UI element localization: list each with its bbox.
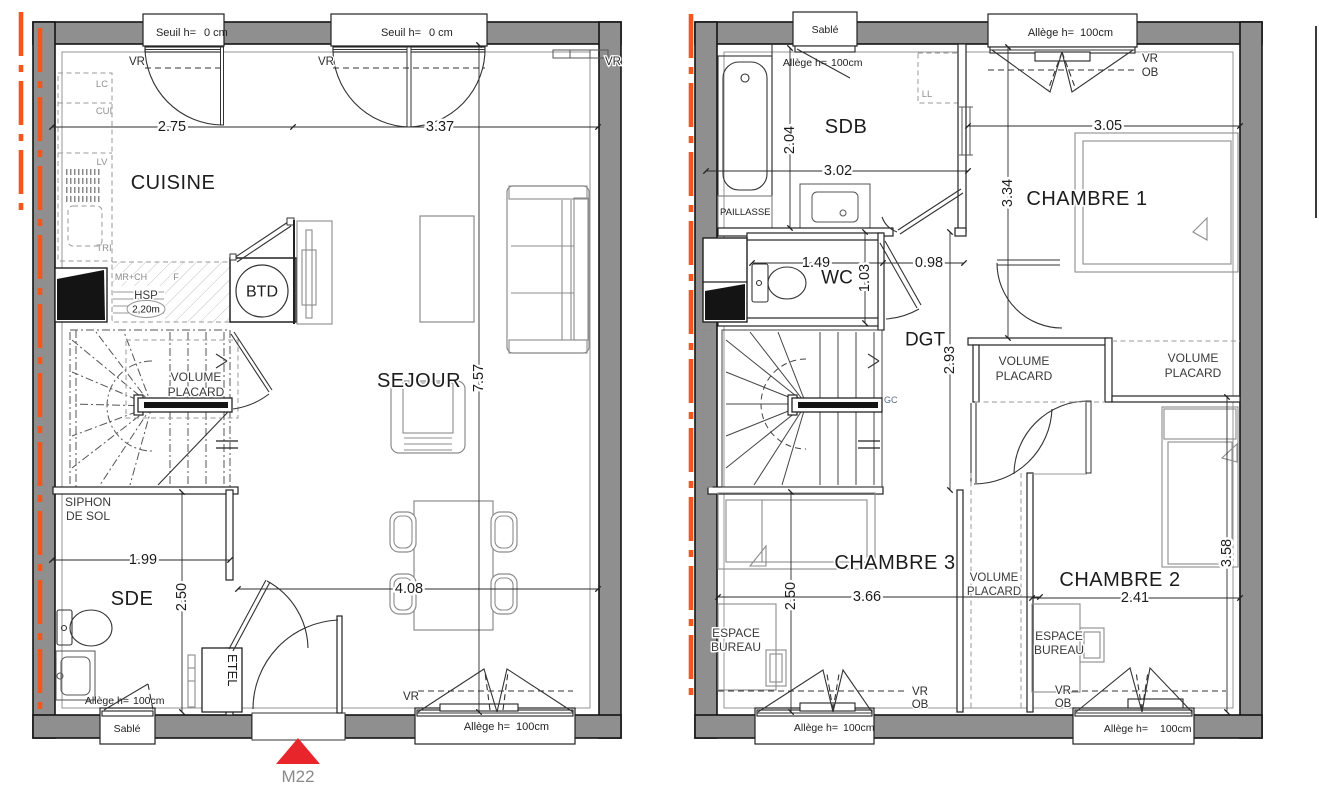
label-espace-bureau: ESPACE <box>1035 629 1083 643</box>
wc-door <box>880 241 921 319</box>
ground-floor-plan: LC CUI LV TRI MR+CH F HSP 2,20m <box>21 12 621 786</box>
window-allege-value: 100cm <box>1160 723 1192 735</box>
floor-plan-sheet: LC CUI LV TRI MR+CH F HSP 2,20m <box>0 0 1319 800</box>
dim-sdb-width: 3.02 <box>824 163 852 179</box>
btd-closet: BTD <box>230 218 296 322</box>
room-label-chambre1: CHAMBRE 1 <box>1026 188 1147 210</box>
wc-toilet-icon <box>752 264 806 302</box>
window-allege-label: Allège h= <box>464 721 510 733</box>
technical-shaft <box>703 238 747 322</box>
label-volume-placard: VOLUME <box>970 572 1019 584</box>
dim-sde-width: 1.99 <box>129 552 157 568</box>
placard-door <box>231 332 272 409</box>
espace-bureau-chambre3: ESPACE BUREAU <box>711 626 761 654</box>
label-ob: OB <box>1142 67 1159 79</box>
dim-sejour-length: 4.08 <box>395 581 423 597</box>
label-ob: OB <box>1055 698 1072 710</box>
dim-sde-height: 2.50 <box>174 583 190 611</box>
entrance-door-code: M22 <box>281 767 314 786</box>
label-vr: VR <box>129 56 145 68</box>
chambre1-door <box>997 260 1062 328</box>
room-label-cuisine: CUISINE <box>131 172 216 194</box>
label-volume-placard: PLACARD <box>1165 366 1222 380</box>
label-siphon-de-sol: DE SOL <box>66 509 110 523</box>
upper-floor-plan: PAILLASSE LL <box>691 12 1262 744</box>
window-allege-value: 100cm <box>1080 27 1113 39</box>
room-label-sejour: SEJOUR <box>377 370 461 392</box>
label-gc: GC <box>884 395 898 405</box>
label-volume-placard: PLACARD <box>967 586 1021 598</box>
room-label-dgt: DGT <box>905 330 946 351</box>
volume-placard-chambres: VOLUME PLACARD <box>967 473 1021 710</box>
kitchen-sink-icon <box>66 172 102 246</box>
window-sable-label: Sablé <box>812 24 839 36</box>
window-seuil-value: 0 cm <box>429 27 453 39</box>
chambre2-door <box>1014 401 1091 474</box>
window-sejour-double: Seuil h= 0 cm VR <box>318 14 487 127</box>
technical-strip: MR+CH F HSP 2,20m <box>112 262 230 322</box>
window-allege-value: 100cm <box>843 722 875 734</box>
dimension-lines: 2.75 3.37 7.57 1.99 2.50 4.08 <box>52 45 598 712</box>
room-label-chambre3: CHAMBRE 3 <box>834 552 955 574</box>
label-lc: LC <box>96 79 108 90</box>
dim-wc-height: 1.03 <box>857 264 873 292</box>
etel-unit: ETEL <box>188 648 242 712</box>
label-vr: VR <box>605 56 621 68</box>
label-volume-placard: VOLUME <box>1168 351 1219 365</box>
label-volume-placard: VOLUME <box>171 370 222 384</box>
window-seuil-value: 0 cm <box>204 27 228 39</box>
label-mr-ch: MR+CH <box>115 272 147 282</box>
dim-sdb-height: 2.04 <box>782 126 798 154</box>
label-lv: LV <box>97 157 109 168</box>
entrance-door: M22 <box>252 616 345 786</box>
technical-shaft <box>55 268 107 322</box>
dim-ch2-height: 3.58 <box>1219 539 1235 567</box>
window-allege-label: Allège h= <box>85 695 129 707</box>
label-vr: VR <box>403 691 419 703</box>
window-allege-label: Allège h= <box>1028 27 1074 39</box>
window-allege-label: Allège h= <box>783 57 827 69</box>
label-tri: TRI <box>96 243 111 254</box>
dim-ch3-height: 2.50 <box>783 582 799 610</box>
label-volume-placard: PLACARD <box>996 369 1053 383</box>
label-volume-placard: VOLUME <box>999 354 1050 368</box>
window-dining: VR Allège h= 100cm <box>403 669 575 744</box>
dim-ch1-width: 3.05 <box>1094 118 1122 134</box>
volume-placard-dgt: VOLUME PLACARD <box>975 354 1105 402</box>
window-seuil-label: Seuil h= <box>156 27 196 39</box>
label-siphon-de-sol: SIPHON <box>65 495 111 509</box>
room-label-sde: SDE <box>111 588 154 610</box>
window-sable-label: Sablé <box>114 723 141 735</box>
label-paillasse: PAILLASSE <box>720 207 771 218</box>
dim-cuisine-width: 2.75 <box>158 119 186 135</box>
label-vr: VR <box>912 686 928 698</box>
espace-bureau-chambre2: ESPACE BUREAU <box>1034 629 1084 657</box>
label-f: F <box>173 272 179 282</box>
window-seuil-label: Seuil h= <box>381 27 421 39</box>
label-espace-bureau: BUREAU <box>1034 643 1084 657</box>
radiator-icon <box>294 220 332 324</box>
label-etel: ETEL <box>225 654 240 687</box>
label-vr: VR <box>318 56 334 68</box>
window-allege-label: Allège h= <box>1104 723 1148 735</box>
room-label-chambre2: CHAMBRE 2 <box>1059 569 1180 591</box>
paillasse-zone: PAILLASSE <box>718 196 772 228</box>
label-vr: VR <box>1055 685 1071 697</box>
window-chambre1: Allège h= 100cm VR OB <box>988 14 1159 92</box>
chambre3-door <box>971 403 1052 484</box>
label-hsp-value: 2,20m <box>132 305 160 316</box>
entrance-marker-icon <box>276 738 320 764</box>
dim-sejour-width: 3.37 <box>426 119 454 135</box>
window-sdb: Sablé Allège h= 100cm <box>783 12 863 78</box>
dining-table-icon <box>390 501 517 630</box>
label-espace-bureau: BUREAU <box>711 640 761 654</box>
window-allege-value: 100cm <box>516 721 549 733</box>
dim-depth: 7.57 <box>471 364 487 392</box>
stair-direction-arrow-icon <box>216 354 227 368</box>
sdb-vanity-icon <box>800 184 870 228</box>
window-allege-value: 100cm <box>831 57 863 69</box>
window-allege-label: Allège h= <box>794 722 838 734</box>
exterior-walls <box>33 22 621 738</box>
label-ob: OB <box>912 699 929 711</box>
label-vr: VR <box>1142 53 1158 65</box>
label-espace-bureau: ESPACE <box>712 626 760 640</box>
kitchen-counter: LC CUI LV TRI <box>58 73 112 261</box>
label-cui: CUI <box>96 106 112 117</box>
volume-placard-chambre1: VOLUME PLACARD <box>1112 341 1240 380</box>
room-label-wc: WC <box>821 268 853 289</box>
floor-plan-drawing: LC CUI LV TRI MR+CH F HSP 2,20m <box>0 0 1319 800</box>
staircase: VOLUME PLACARD <box>70 330 272 487</box>
sde-door <box>229 580 308 651</box>
window-allege-value: 100cm <box>133 695 165 707</box>
label-ll: LL <box>922 89 933 100</box>
label-volume-placard: PLACARD <box>168 385 225 399</box>
sde-toilet-icon <box>57 610 112 646</box>
dim-ch1-height: 3.34 <box>1000 179 1016 207</box>
sofa-icon <box>507 186 589 353</box>
sdb-door <box>882 189 963 234</box>
coffee-table-icon <box>420 216 474 322</box>
dim-ch2-width: 2.41 <box>1121 590 1149 606</box>
dim-ch3-width: 3.66 <box>853 589 881 605</box>
label-btd: BTD <box>246 284 278 301</box>
room-label-sdb: SDB <box>825 116 868 138</box>
dim-dgt-width: 0.98 <box>915 255 943 271</box>
bathtub-icon <box>718 56 772 196</box>
window-cuisine: Seuil h= 0 cm VR <box>129 14 228 125</box>
staircase: GC <box>704 330 898 487</box>
